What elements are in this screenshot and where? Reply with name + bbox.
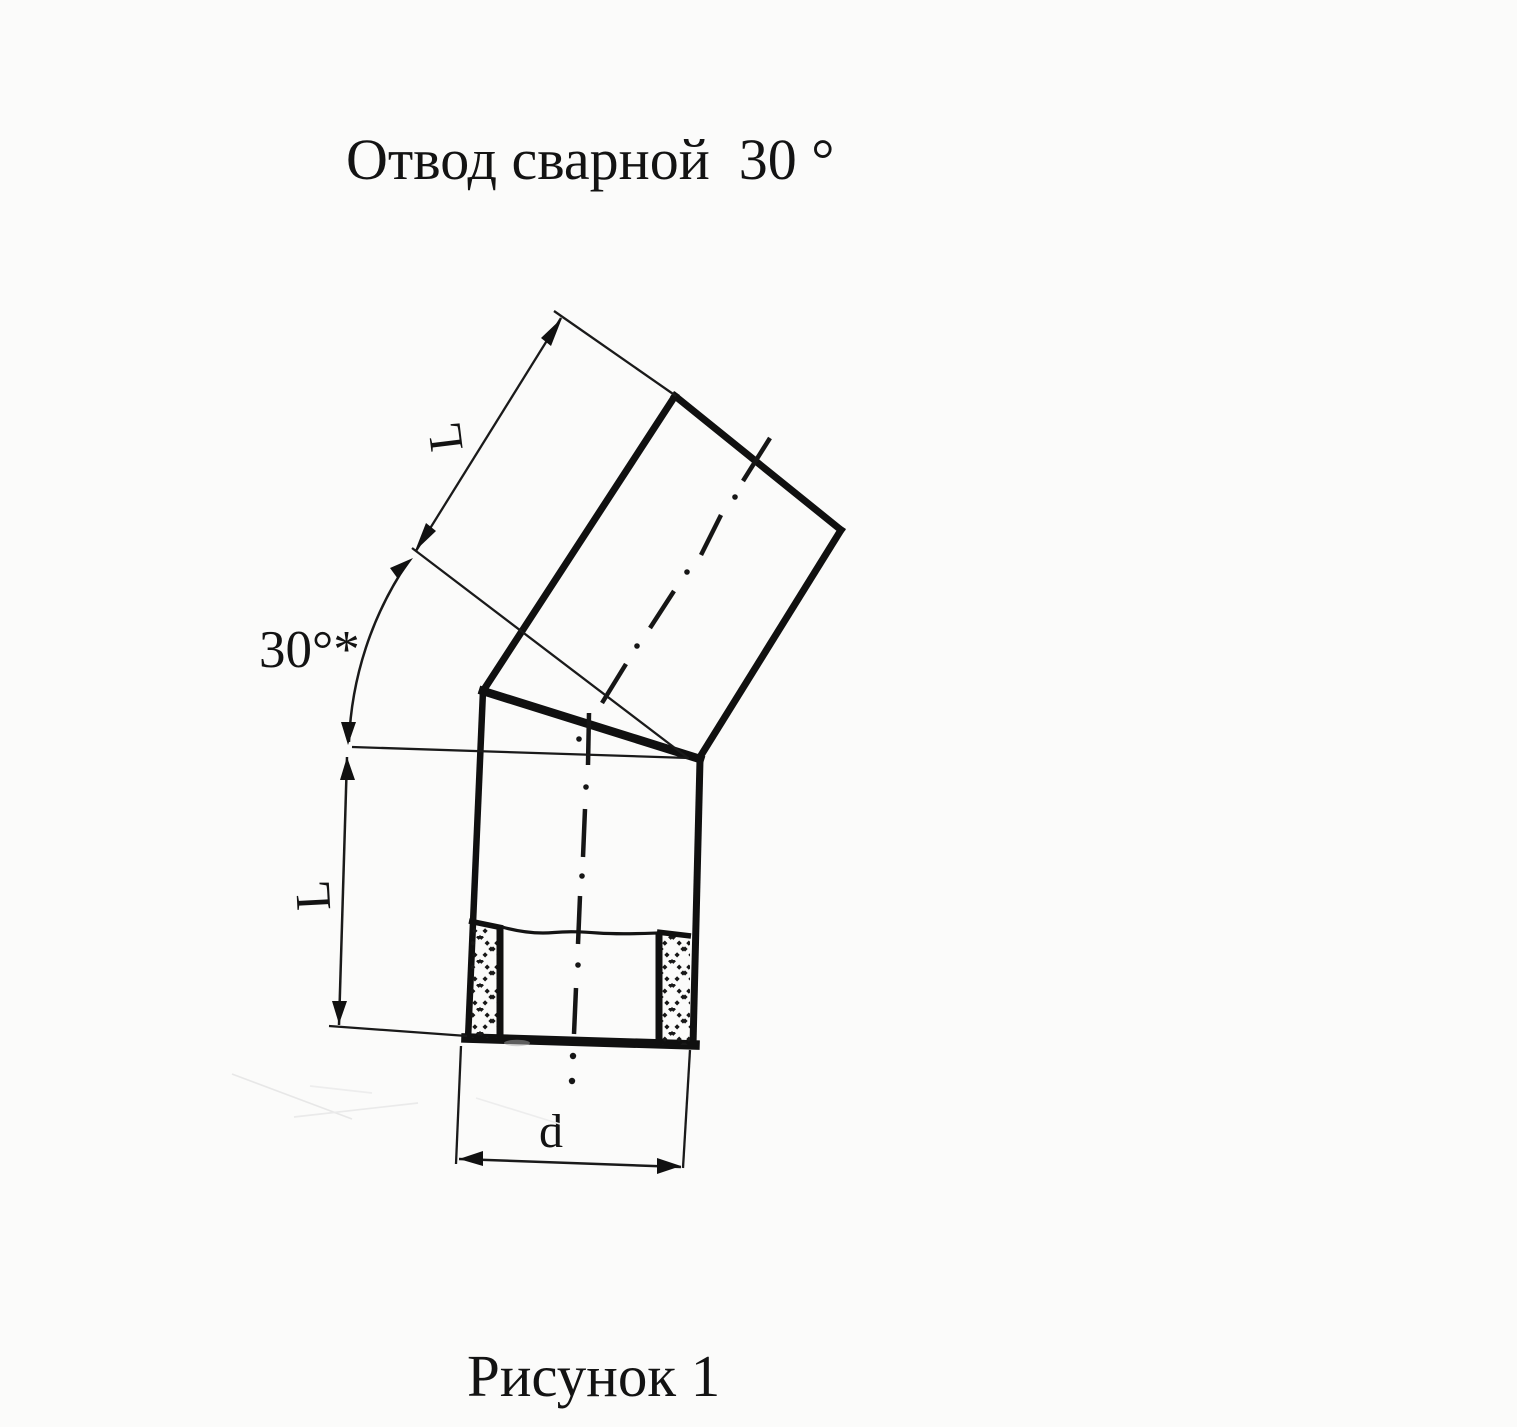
svg-text:d: d xyxy=(539,1105,563,1158)
svg-text:Отвод сварной 30 °: Отвод сварной 30 ° xyxy=(346,127,834,192)
svg-text:L: L xyxy=(284,879,342,912)
svg-text:30°*: 30°* xyxy=(259,621,360,679)
svg-text:Рисунок 1: Рисунок 1 xyxy=(467,1343,720,1409)
